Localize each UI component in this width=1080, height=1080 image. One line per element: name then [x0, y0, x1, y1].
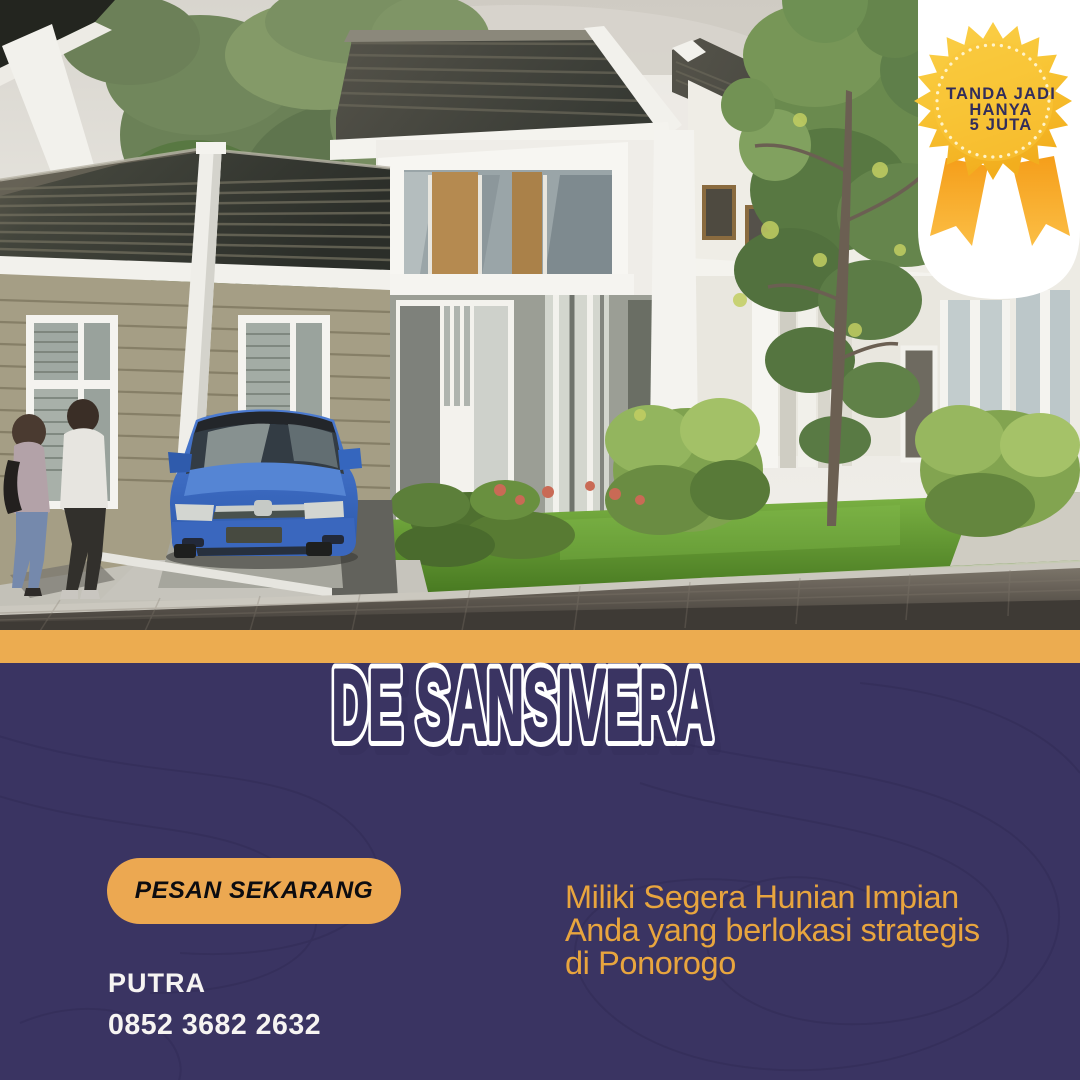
svg-text:DE SANSIVERA: DE SANSIVERA [332, 650, 713, 761]
svg-text:5 JUTA: 5 JUTA [970, 116, 1033, 134]
